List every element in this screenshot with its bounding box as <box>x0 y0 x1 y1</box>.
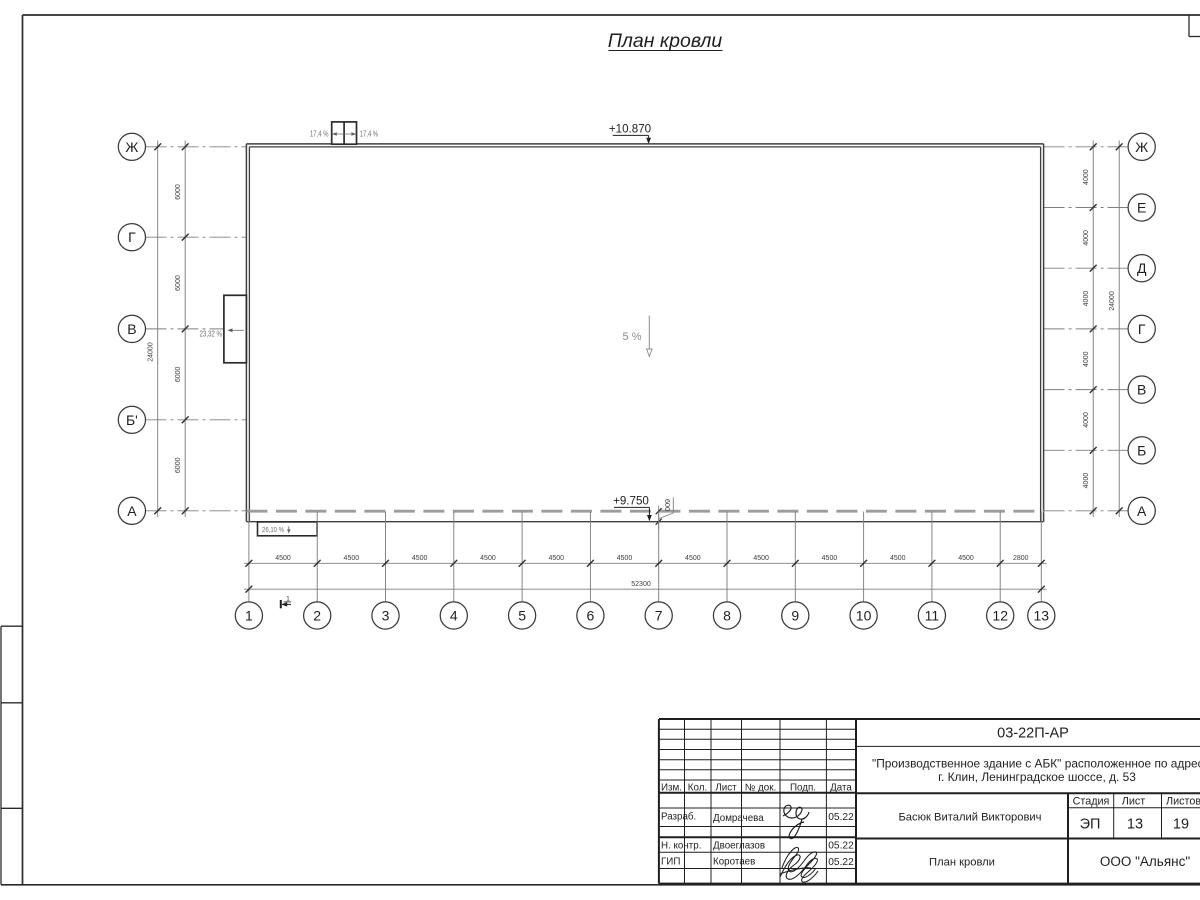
svg-text:Д: Д <box>1137 260 1147 276</box>
svg-text:6000: 6000 <box>175 457 182 473</box>
svg-text:Дата: Дата <box>830 782 852 793</box>
svg-text:А: А <box>127 503 137 519</box>
svg-text:5: 5 <box>518 607 526 623</box>
svg-text:4000: 4000 <box>1083 230 1090 246</box>
svg-text:Листов: Листов <box>1166 795 1200 807</box>
svg-text:Подп.: Подп. <box>790 782 816 793</box>
svg-text:5 %: 5 % <box>623 331 642 343</box>
svg-text:11: 11 <box>925 607 940 623</box>
svg-text:4000: 4000 <box>1083 169 1090 185</box>
svg-text:7: 7 <box>655 607 663 623</box>
svg-text:4000: 4000 <box>1083 473 1090 489</box>
svg-text:4500: 4500 <box>890 555 906 562</box>
svg-text:4500: 4500 <box>548 555 564 562</box>
svg-text:"Производственное здание с АБК: "Производственное здание с АБК" располож… <box>872 757 1200 771</box>
svg-text:Е: Е <box>1137 199 1146 215</box>
svg-text:Б': Б' <box>126 412 138 428</box>
svg-text:24000: 24000 <box>147 342 154 362</box>
svg-text:4000: 4000 <box>1083 291 1090 307</box>
svg-text:Коротаев: Коротаев <box>713 856 755 867</box>
svg-text:13: 13 <box>1034 607 1050 623</box>
svg-text:05.22: 05.22 <box>828 812 854 823</box>
svg-text:ГИП: ГИП <box>661 856 680 867</box>
svg-text:В: В <box>127 321 136 337</box>
svg-text:ЭП: ЭП <box>1080 816 1101 832</box>
svg-text:Б: Б <box>1137 442 1146 458</box>
svg-text:17,4 %: 17,4 % <box>360 130 379 139</box>
svg-text:Разраб.: Разраб. <box>661 812 696 823</box>
svg-text:6: 6 <box>587 607 595 623</box>
svg-text:Басюк Виталий Викторович: Басюк Виталий Викторович <box>898 811 1041 823</box>
svg-text:52300: 52300 <box>631 581 651 588</box>
svg-text:05.22: 05.22 <box>828 841 854 852</box>
svg-text:Лист: Лист <box>715 782 737 793</box>
svg-text:2800: 2800 <box>1013 555 1029 562</box>
svg-text:24000: 24000 <box>1109 291 1116 311</box>
svg-text:Кол.: Кол. <box>688 782 707 793</box>
svg-text:4500: 4500 <box>412 555 428 562</box>
svg-text:Стадия: Стадия <box>1073 795 1110 807</box>
svg-text:В: В <box>1137 382 1146 398</box>
svg-text:600: 600 <box>663 499 672 511</box>
svg-text:23,32 %: 23,32 % <box>200 330 223 339</box>
svg-text:05.22: 05.22 <box>828 857 854 868</box>
svg-text:1: 1 <box>286 596 290 603</box>
svg-text:4500: 4500 <box>753 555 769 562</box>
svg-text:4000: 4000 <box>1083 412 1090 428</box>
svg-text:ООО "Альянс": ООО "Альянс" <box>1100 854 1190 869</box>
svg-text:г. Клин, Ленинградское шоссе,: г. Клин, Ленинградское шоссе, д. 53 <box>938 770 1136 784</box>
svg-text:6000: 6000 <box>175 275 182 291</box>
svg-text:+10.870: +10.870 <box>609 123 651 136</box>
svg-text:8: 8 <box>723 607 731 623</box>
svg-text:9: 9 <box>791 607 799 623</box>
svg-text:План кровли: План кровли <box>608 30 723 52</box>
svg-text:1: 1 <box>245 607 253 623</box>
svg-text:Изм.: Изм. <box>661 782 682 793</box>
svg-text:12: 12 <box>992 607 1008 623</box>
svg-text:13: 13 <box>1127 816 1143 832</box>
svg-text:17,4 %: 17,4 % <box>310 130 329 139</box>
svg-text:Ж: Ж <box>1135 139 1148 155</box>
svg-text:4500: 4500 <box>958 555 974 562</box>
svg-text:План кровли: План кровли <box>929 856 995 868</box>
svg-text:№ док.: № док. <box>745 782 776 793</box>
svg-text:4500: 4500 <box>344 555 360 562</box>
svg-text:3: 3 <box>382 607 390 623</box>
svg-text:Г: Г <box>128 229 136 245</box>
svg-text:А: А <box>1137 503 1147 519</box>
svg-text:19: 19 <box>1173 816 1189 832</box>
svg-text:Н. контр.: Н. контр. <box>661 841 701 852</box>
svg-text:26,10 %: 26,10 % <box>262 525 284 534</box>
svg-text:Г: Г <box>1138 321 1146 337</box>
svg-text:4: 4 <box>450 607 458 623</box>
svg-text:4500: 4500 <box>685 555 701 562</box>
svg-text:03-22П-АР: 03-22П-АР <box>997 726 1069 742</box>
svg-text:+9.750: +9.750 <box>613 495 649 508</box>
svg-text:Двоеглазов: Двоеглазов <box>713 841 765 852</box>
svg-text:Ж: Ж <box>125 139 138 155</box>
svg-text:4500: 4500 <box>275 555 291 562</box>
svg-text:4500: 4500 <box>822 555 838 562</box>
svg-text:6000: 6000 <box>175 366 182 382</box>
svg-text:4000: 4000 <box>1083 351 1090 367</box>
svg-text:Домрачева: Домрачева <box>713 813 764 824</box>
svg-text:4500: 4500 <box>617 555 633 562</box>
svg-text:10: 10 <box>856 607 872 623</box>
svg-text:2: 2 <box>313 607 321 623</box>
svg-text:6000: 6000 <box>175 184 182 200</box>
svg-text:Лист: Лист <box>1122 795 1146 807</box>
svg-text:4500: 4500 <box>480 555 496 562</box>
